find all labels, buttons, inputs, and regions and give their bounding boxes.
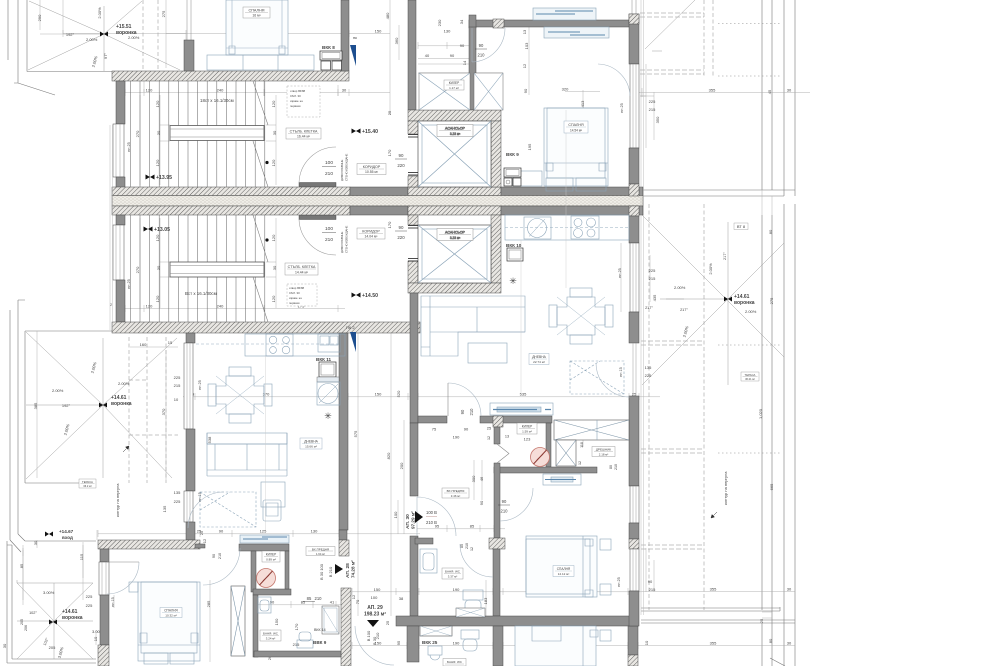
svg-text:22.74 м²: 22.74 м² bbox=[533, 360, 545, 364]
svg-text:ВКК 10: ВКК 10 bbox=[506, 243, 522, 248]
svg-text:2.00%: 2.00% bbox=[97, 7, 102, 19]
svg-text:100: 100 bbox=[393, 511, 398, 518]
svg-text:12: 12 bbox=[470, 547, 474, 551]
svg-text:16 м²: 16 м² bbox=[252, 14, 261, 18]
svg-text:74.28 м²: 74.28 м² bbox=[351, 560, 356, 578]
svg-text:120: 120 bbox=[271, 100, 276, 107]
svg-text:пк: пк bbox=[353, 35, 357, 40]
svg-text:КИЛЕР: КИЛЕР bbox=[522, 425, 533, 429]
svg-text:135: 135 bbox=[645, 365, 652, 370]
svg-text:25: 25 bbox=[759, 618, 764, 623]
svg-text:210 В: 210 В bbox=[426, 520, 437, 525]
svg-text:97.29 м²: 97.29 м² bbox=[411, 511, 416, 529]
svg-text:130: 130 bbox=[444, 29, 451, 34]
svg-text:192°: 192° bbox=[62, 403, 71, 408]
svg-text:пп 25: пп 25 bbox=[617, 577, 621, 586]
svg-text:13: 13 bbox=[505, 435, 509, 439]
svg-text:205: 205 bbox=[20, 619, 24, 625]
svg-text:✳: ✳ bbox=[324, 411, 332, 421]
svg-text:90: 90 bbox=[212, 554, 216, 558]
svg-text:190: 190 bbox=[453, 641, 460, 646]
svg-text:170: 170 bbox=[294, 623, 299, 630]
svg-text:30: 30 bbox=[342, 88, 347, 93]
svg-text:210: 210 bbox=[325, 171, 333, 177]
svg-text:2.18 м²: 2.18 м² bbox=[599, 453, 608, 457]
svg-text:38: 38 bbox=[399, 596, 404, 601]
svg-text:80: 80 bbox=[768, 638, 773, 643]
svg-text:225: 225 bbox=[174, 499, 181, 504]
svg-text:пп 15: пп 15 bbox=[111, 597, 115, 606]
svg-text:90: 90 bbox=[399, 225, 404, 230]
svg-text:215: 215 bbox=[649, 276, 656, 281]
svg-text:90: 90 bbox=[219, 529, 224, 534]
svg-text:90: 90 bbox=[450, 53, 455, 58]
svg-text:85: 85 bbox=[470, 524, 475, 529]
svg-text:36.21 м²: 36.21 м² bbox=[745, 377, 755, 381]
svg-text:воронка: воронка bbox=[62, 615, 83, 621]
svg-text:В 100: В 100 bbox=[366, 630, 371, 641]
svg-text:90: 90 bbox=[464, 427, 469, 432]
svg-text:355: 355 bbox=[709, 88, 716, 93]
svg-text:12: 12 bbox=[351, 594, 356, 599]
svg-text:210: 210 bbox=[501, 509, 509, 514]
svg-text:3.23 м²: 3.23 м² bbox=[450, 236, 460, 240]
svg-text:1.59 м²: 1.59 м² bbox=[522, 430, 532, 434]
svg-text:25: 25 bbox=[387, 110, 392, 115]
svg-text:АП. 29: АП. 29 bbox=[367, 605, 383, 611]
svg-text:120: 120 bbox=[271, 295, 276, 302]
svg-text:413: 413 bbox=[580, 100, 585, 107]
svg-text:14.54 м²: 14.54 м² bbox=[570, 129, 582, 133]
svg-text:150: 150 bbox=[274, 618, 279, 625]
svg-text:90: 90 bbox=[460, 43, 465, 48]
svg-text:СТЕНОИЗВЕЖДАНЕ: СТЕНОИЗВЕЖДАНЕ bbox=[345, 154, 349, 181]
svg-text:130: 130 bbox=[311, 529, 318, 534]
svg-text:КИЛЕР: КИЛЕР bbox=[266, 553, 277, 557]
svg-text:34: 34 bbox=[459, 19, 464, 24]
svg-text:217°: 217° bbox=[645, 306, 653, 310]
svg-text:575: 575 bbox=[353, 430, 358, 437]
svg-text:10: 10 bbox=[93, 636, 98, 641]
svg-text:118: 118 bbox=[580, 442, 584, 448]
svg-text:220: 220 bbox=[397, 163, 405, 168]
svg-text:12: 12 bbox=[202, 538, 207, 543]
svg-text:320: 320 bbox=[562, 87, 569, 92]
svg-text:90: 90 bbox=[460, 409, 465, 414]
svg-text:30: 30 bbox=[33, 540, 38, 545]
svg-text:217°: 217° bbox=[723, 252, 727, 260]
svg-text:225: 225 bbox=[174, 375, 181, 380]
svg-text:90: 90 bbox=[479, 500, 484, 505]
svg-text:КОРИДОР: КОРИДОР bbox=[362, 230, 380, 234]
svg-text:215: 215 bbox=[649, 587, 656, 592]
svg-text:воронка: воронка bbox=[111, 401, 132, 407]
svg-text:70: 70 bbox=[355, 599, 360, 604]
svg-text:10: 10 bbox=[644, 640, 649, 645]
svg-text:225: 225 bbox=[645, 373, 652, 378]
svg-text:воронка: воронка bbox=[116, 30, 137, 36]
svg-text:В 30: В 30 bbox=[372, 636, 377, 645]
svg-text:90: 90 bbox=[399, 153, 404, 158]
svg-text:СЪЛ. 30: СЪЛ. 30 bbox=[289, 291, 300, 295]
svg-text:41: 41 bbox=[330, 600, 335, 605]
svg-text:240: 240 bbox=[217, 88, 224, 93]
svg-text:270: 270 bbox=[135, 130, 140, 137]
svg-text:210: 210 bbox=[465, 543, 469, 549]
svg-text:225: 225 bbox=[86, 594, 93, 599]
svg-text:80: 80 bbox=[609, 465, 613, 469]
svg-text:пп 15: пп 15 bbox=[619, 367, 623, 376]
svg-text:ВКК 14: ВКК 14 bbox=[314, 628, 326, 632]
svg-text:520: 520 bbox=[396, 390, 401, 397]
svg-text:В 30 100: В 30 100 bbox=[319, 563, 324, 580]
svg-text:370: 370 bbox=[161, 408, 166, 415]
svg-text:30: 30 bbox=[156, 265, 161, 270]
svg-text:СТЕНОИЗВЕЖДАНЕ: СТЕНОИЗВЕЖДАНЕ bbox=[345, 226, 349, 253]
svg-text:ПК 2: ПК 2 bbox=[346, 325, 355, 330]
svg-text:15.66 м²: 15.66 м² bbox=[305, 445, 317, 449]
svg-text:80: 80 bbox=[768, 229, 773, 234]
svg-text:ВХ.ПРЕДНЯ: ВХ.ПРЕДНЯ bbox=[447, 489, 465, 493]
svg-text:192°: 192° bbox=[66, 32, 75, 37]
svg-text:350: 350 bbox=[655, 116, 660, 123]
svg-text:ВКК 8: ВКК 8 bbox=[322, 45, 335, 50]
svg-text:480: 480 bbox=[385, 12, 390, 19]
svg-text:385: 385 bbox=[33, 402, 38, 409]
svg-text:85: 85 bbox=[307, 596, 312, 601]
svg-text:135: 135 bbox=[162, 505, 167, 512]
svg-text:СПАЛНЯ: СПАЛНЯ bbox=[248, 9, 264, 13]
svg-text:217°: 217° bbox=[680, 308, 688, 312]
svg-text:103: 103 bbox=[524, 42, 529, 49]
svg-text:контур на пергула: контур на пергула bbox=[723, 471, 728, 505]
svg-text:100: 100 bbox=[371, 595, 378, 600]
svg-text:85: 85 bbox=[460, 544, 464, 548]
svg-text:205: 205 bbox=[49, 645, 56, 650]
svg-text:13: 13 bbox=[522, 29, 527, 34]
svg-text:170: 170 bbox=[387, 149, 392, 156]
svg-text:отвор 86/88: отвор 86/88 bbox=[290, 89, 306, 93]
svg-text:14: 14 bbox=[462, 60, 467, 65]
svg-text:30: 30 bbox=[272, 265, 277, 270]
svg-text:150: 150 bbox=[374, 587, 381, 592]
svg-text:100 В: 100 В bbox=[426, 510, 437, 515]
svg-text:2.00%: 2.00% bbox=[708, 263, 713, 275]
svg-text:210: 210 bbox=[315, 596, 323, 601]
svg-text:170: 170 bbox=[387, 221, 392, 228]
svg-text:210: 210 bbox=[218, 553, 222, 559]
svg-text:30: 30 bbox=[156, 130, 161, 135]
svg-text:БАНЯ: WC: БАНЯ: WC bbox=[445, 570, 461, 574]
svg-text:+14.67: +14.67 bbox=[59, 529, 74, 534]
svg-text:12: 12 bbox=[522, 63, 527, 68]
svg-text:СПАЛНЯ: СПАЛНЯ bbox=[568, 123, 584, 127]
svg-text:125: 125 bbox=[260, 529, 267, 534]
svg-text:0.89 м²: 0.89 м² bbox=[266, 558, 276, 562]
svg-text:95: 95 bbox=[396, 640, 401, 645]
svg-text:СПАЛНЯ: СПАЛНЯ bbox=[164, 609, 178, 613]
svg-text:270: 270 bbox=[135, 266, 140, 273]
svg-text:190: 190 bbox=[453, 435, 460, 440]
svg-text:2.00%: 2.00% bbox=[745, 309, 757, 314]
svg-text:100: 100 bbox=[325, 160, 333, 166]
svg-text:3.00%: 3.00% bbox=[43, 590, 55, 595]
svg-text:46: 46 bbox=[479, 476, 484, 481]
svg-text:2.00%: 2.00% bbox=[674, 285, 686, 290]
svg-text:В 210: В 210 bbox=[328, 566, 333, 577]
svg-text:СПАЛНЯ: СПАЛНЯ bbox=[557, 567, 571, 571]
svg-text:25: 25 bbox=[487, 426, 492, 431]
svg-text:206: 206 bbox=[24, 625, 28, 631]
svg-text:215: 215 bbox=[174, 383, 181, 388]
svg-text:30: 30 bbox=[2, 643, 7, 648]
svg-text:14.44 м²: 14.44 м² bbox=[295, 271, 309, 275]
svg-text:97°: 97° bbox=[103, 53, 108, 59]
svg-text:ВВК 9: ВВК 9 bbox=[313, 640, 327, 645]
svg-text:200: 200 bbox=[399, 462, 404, 469]
svg-text:3.37 м²: 3.37 м² bbox=[448, 575, 457, 579]
svg-text:90: 90 bbox=[523, 88, 528, 93]
svg-text:225: 225 bbox=[649, 268, 656, 273]
svg-text:285: 285 bbox=[206, 600, 211, 607]
svg-text:12: 12 bbox=[487, 436, 491, 440]
svg-text:120: 120 bbox=[271, 159, 276, 166]
svg-text:АСАНСЬОР: АСАНСЬОР bbox=[445, 231, 465, 235]
svg-text:275: 275 bbox=[769, 297, 774, 304]
svg-text:30: 30 bbox=[787, 587, 792, 592]
svg-text:275: 275 bbox=[161, 10, 166, 17]
svg-text:360: 360 bbox=[394, 37, 399, 44]
svg-text:102°: 102° bbox=[29, 611, 37, 615]
svg-text:198.23 м²: 198.23 м² bbox=[364, 612, 386, 618]
svg-text:2: 2 bbox=[110, 303, 112, 307]
svg-text:БАНЯ: WC: БАНЯ: WC bbox=[447, 660, 463, 664]
svg-text:первази: первази bbox=[290, 104, 301, 108]
svg-text:25: 25 bbox=[197, 529, 202, 534]
svg-text:ДИМОУЛАВЯНЕ: ДИМОУЛАВЯНЕ bbox=[340, 231, 344, 253]
svg-text:СТЪЛБ. КЛЕТКА: СТЪЛБ. КЛЕТКА bbox=[288, 265, 316, 269]
svg-text:1.64 м²: 1.64 м² bbox=[316, 552, 325, 556]
svg-text:538: 538 bbox=[207, 436, 212, 443]
svg-text:210: 210 bbox=[478, 53, 486, 58]
svg-text:ВХ.ПРЕДНЯ: ВХ.ПРЕДНЯ bbox=[312, 547, 329, 551]
svg-text:изравн. на: изравн. на bbox=[290, 100, 303, 103]
svg-text:220: 220 bbox=[397, 235, 405, 240]
svg-text:90: 90 bbox=[502, 499, 507, 504]
svg-text:ДРЕШНИК: ДРЕШНИК bbox=[596, 448, 612, 452]
svg-text:215: 215 bbox=[649, 107, 656, 112]
svg-text:10.55 м²: 10.55 м² bbox=[365, 170, 379, 174]
svg-text:пп 25: пп 25 bbox=[618, 268, 622, 277]
svg-text:215: 215 bbox=[293, 642, 300, 647]
svg-text:ТЕРАСА: ТЕРАСА bbox=[745, 373, 756, 377]
svg-text:90: 90 bbox=[648, 579, 653, 584]
svg-text:820: 820 bbox=[386, 452, 391, 459]
svg-text:пп 25: пп 25 bbox=[198, 380, 202, 389]
svg-text:3.46 м²: 3.46 м² bbox=[451, 494, 460, 498]
svg-text:150: 150 bbox=[375, 392, 382, 397]
svg-text:14.04 м²: 14.04 м² bbox=[365, 235, 379, 239]
svg-text:45: 45 bbox=[767, 89, 772, 94]
svg-text:пп 25: пп 25 bbox=[620, 103, 624, 112]
svg-text:40: 40 bbox=[425, 53, 430, 58]
svg-text:18ст х 16.1/30см: 18ст х 16.1/30см bbox=[200, 98, 234, 103]
svg-text:первази: первази bbox=[289, 301, 300, 305]
svg-text:АСАНСЬОР: АСАНСЬОР bbox=[445, 127, 465, 131]
svg-text:90: 90 bbox=[479, 43, 484, 48]
svg-text:225: 225 bbox=[649, 99, 656, 104]
svg-text:ВКК 9: ВКК 9 bbox=[506, 152, 519, 157]
svg-text:15: 15 bbox=[168, 340, 173, 345]
svg-text:30: 30 bbox=[272, 130, 277, 135]
svg-text:✳: ✳ bbox=[509, 276, 517, 286]
svg-text:2.00%: 2.00% bbox=[86, 37, 98, 42]
svg-text:отвор 86/88: отвор 86/88 bbox=[289, 286, 305, 290]
svg-text:30: 30 bbox=[787, 641, 792, 646]
svg-text:СЪЛ. 30: СЪЛ. 30 bbox=[290, 94, 301, 98]
svg-text:вход: вход bbox=[62, 535, 73, 540]
svg-text:12.12 м²: 12.12 м² bbox=[558, 572, 569, 576]
svg-text:ДНЕВНА: ДНЕВНА bbox=[532, 355, 546, 359]
svg-text:355: 355 bbox=[710, 641, 717, 646]
svg-text:10.32 м²: 10.32 м² bbox=[165, 614, 176, 618]
svg-text:ТЕРАСА: ТЕРАСА bbox=[82, 480, 93, 484]
svg-text:90: 90 bbox=[270, 600, 275, 605]
svg-text:210: 210 bbox=[614, 464, 618, 470]
svg-text:355: 355 bbox=[710, 587, 717, 592]
svg-text:3.23 м²: 3.23 м² bbox=[450, 132, 460, 136]
svg-text:3.24 м²: 3.24 м² bbox=[266, 637, 275, 641]
svg-text:воронка: воронка bbox=[734, 300, 755, 306]
svg-text:435: 435 bbox=[652, 294, 657, 301]
svg-text:+14.50: +14.50 bbox=[362, 293, 378, 299]
svg-text:ДНЕВНА: ДНЕВНА bbox=[304, 440, 318, 444]
svg-text:1.17 м²: 1.17 м² bbox=[449, 86, 459, 90]
svg-text:36.2 м²: 36.2 м² bbox=[83, 484, 92, 488]
svg-text:+15.40: +15.40 bbox=[362, 129, 378, 135]
svg-text:123: 123 bbox=[524, 437, 531, 442]
svg-text:290: 290 bbox=[37, 14, 42, 21]
svg-text:85: 85 bbox=[19, 563, 24, 568]
svg-text:1,020: 1,020 bbox=[758, 408, 763, 419]
svg-text:135: 135 bbox=[174, 490, 181, 495]
svg-text:210: 210 bbox=[469, 408, 474, 416]
svg-text:ДИМОУЛАВЯНЕ: ДИМОУЛАВЯНЕ bbox=[340, 159, 344, 181]
svg-text:225: 225 bbox=[86, 603, 93, 608]
svg-text:150: 150 bbox=[375, 29, 382, 34]
svg-text:СТЪЛБ. КЛЕТКА: СТЪЛБ. КЛЕТКА bbox=[290, 130, 318, 134]
svg-text:контур на пергула: контур на пергула bbox=[115, 483, 120, 517]
svg-text:ВКК 11: ВКК 11 bbox=[316, 357, 332, 362]
svg-text:+13.05: +13.05 bbox=[154, 227, 170, 233]
svg-text:КИЛЕР: КИЛЕР bbox=[449, 81, 460, 85]
svg-text:2.00%: 2.00% bbox=[52, 388, 64, 393]
svg-text:195: 195 bbox=[527, 143, 532, 150]
svg-text:Вст х 16.1/30см: Вст х 16.1/30см bbox=[185, 291, 217, 296]
svg-text:ВТ 8: ВТ 8 bbox=[737, 224, 746, 229]
svg-text:210: 210 bbox=[325, 237, 333, 243]
svg-text:12: 12 bbox=[578, 461, 582, 465]
svg-text:300: 300 bbox=[471, 475, 476, 482]
svg-text:100: 100 bbox=[325, 226, 333, 232]
svg-text:240: 240 bbox=[217, 304, 224, 309]
svg-text:85: 85 bbox=[301, 600, 306, 605]
svg-text:10: 10 bbox=[174, 397, 179, 402]
svg-text:изравн. на: изравн. на bbox=[289, 297, 302, 300]
svg-text:ВКК 25: ВКК 25 bbox=[422, 640, 438, 645]
svg-text:КОРИДОР: КОРИДОР bbox=[363, 165, 381, 169]
svg-text:16.44 м²: 16.44 м² bbox=[297, 135, 311, 139]
svg-text:БАНЯ: WC: БАНЯ: WC bbox=[263, 632, 279, 636]
svg-text:25: 25 bbox=[385, 620, 390, 625]
svg-text:75: 75 bbox=[432, 427, 437, 432]
svg-text:160: 160 bbox=[140, 342, 147, 347]
svg-text:30: 30 bbox=[787, 88, 792, 93]
svg-text:535: 535 bbox=[520, 392, 527, 397]
svg-text:665: 665 bbox=[769, 483, 774, 490]
svg-text:120: 120 bbox=[271, 234, 276, 241]
svg-text:183: 183 bbox=[483, 597, 488, 604]
svg-text:230: 230 bbox=[437, 19, 442, 26]
svg-text:+13.95: +13.95 bbox=[156, 175, 172, 181]
svg-text:2.00%: 2.00% bbox=[118, 381, 130, 386]
